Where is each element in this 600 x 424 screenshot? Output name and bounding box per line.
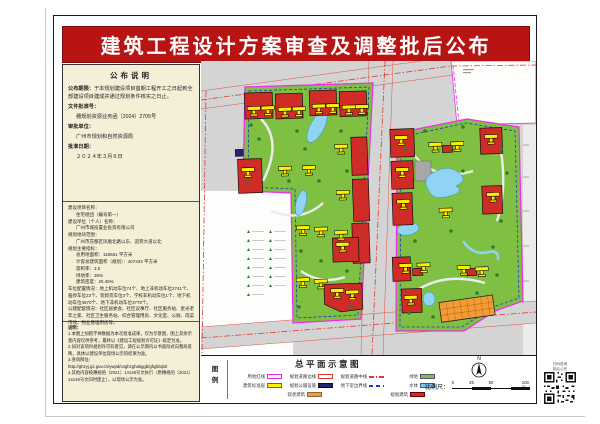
field-value: 广州市城投置业投资有限公司 bbox=[68, 225, 194, 232]
scale-tick: 25 bbox=[469, 380, 474, 385]
field-value: 广州市规划和自然资源局 bbox=[68, 133, 194, 141]
note-item: 4.其他内容按穗规函〔2021〕14148号文执行（原穗规函〔2021〕1414… bbox=[68, 370, 194, 383]
legend-label: 规划道路边线 bbox=[282, 374, 318, 380]
legend-label: 规划公服设施 bbox=[282, 383, 318, 389]
north-arrow: N bbox=[425, 357, 533, 378]
section-title: 公布说明 bbox=[68, 70, 194, 81]
legend-label: 绿地 bbox=[384, 374, 420, 380]
swatch-planned-building bbox=[410, 392, 425, 397]
indicator: 容积率：3.5 bbox=[68, 266, 194, 273]
info-panel: 公布说明 公布期限：于本规划建设项目首期工程开工之日起到全部建设项目建成并通过规… bbox=[62, 64, 200, 402]
legend-block: 总平面示意图 用地红线 规划道路边线 规划道路中线 绿地 建筑标准层 规划公服设… bbox=[231, 357, 425, 399]
field-value: ２０２４年３月６日 bbox=[68, 153, 194, 161]
parcel-right bbox=[388, 119, 529, 331]
field-label: 审批单位： bbox=[68, 124, 94, 130]
note-item: 2.如对该项目规划许可有意见，请在公示期内以书面形式向我局反映，具体以建设单位现… bbox=[68, 344, 194, 357]
site-plan-svg bbox=[201, 61, 536, 355]
legend-label: 现状建筑 bbox=[271, 392, 307, 398]
swatch-basement-line bbox=[369, 385, 384, 387]
indicator: 计容总建筑面积（规划）：407333 平方米 bbox=[68, 259, 194, 266]
legend-row: 用地红线 规划道路边线 规划道路中线 绿地 bbox=[231, 372, 425, 381]
field-value: 穗规划资源业务函〔2024〕2705号 bbox=[68, 113, 194, 121]
announcement-poster: { "banner": { "title": "建筑工程设计方案审查及调整批后公… bbox=[0, 0, 600, 424]
legend-row: 建筑标准层 规划公服设施 地下室边界线 水体 bbox=[231, 381, 425, 390]
legend-caption: 图 例 bbox=[208, 364, 222, 386]
legend-divider bbox=[227, 360, 228, 399]
section-notes: 说明： 1.本图上加粗字体数据为本次批准成果，仅为示意图，图上其余示意内容仅供参… bbox=[63, 322, 199, 400]
qr-code-icon bbox=[544, 372, 576, 404]
scan-artifact-bottom bbox=[45, 416, 585, 417]
section-announcement: 公布说明 公布期限：于本规划建设项目首期工程开工之日起到全部建设项目建成并通过规… bbox=[63, 65, 199, 202]
legend-strip: 图 例 总平面示意图 用地红线 规划道路边线 规划道路中线 绿地 建筑标准层 规… bbox=[201, 355, 536, 402]
field-label: 规划地块范围： bbox=[68, 232, 194, 239]
legend-row: 现状建筑 规划建筑 bbox=[231, 390, 425, 399]
site-plan-drawing bbox=[201, 61, 536, 355]
swatch-existing-building bbox=[307, 392, 322, 397]
field-label: 建设项目名称： bbox=[68, 205, 194, 212]
legend-label: 地下室边界线 bbox=[333, 383, 369, 389]
scale-tick: 0 bbox=[452, 380, 454, 385]
indicator: 建筑密度：25.46% bbox=[68, 279, 194, 286]
field-value: 住宅组团（编号第一） bbox=[68, 212, 194, 219]
qr-caption-line2: 批后公布 bbox=[541, 367, 579, 372]
legend-label: 用地红线 bbox=[231, 374, 267, 380]
field-label: 公建配套情况： bbox=[68, 306, 100, 311]
scale-label: 比例尺： bbox=[425, 382, 449, 392]
tiny-note-line bbox=[463, 69, 474, 70]
compass-icon bbox=[471, 362, 487, 378]
public-facility bbox=[235, 149, 243, 156]
swatch-typical-floor bbox=[267, 383, 282, 388]
white-parcel-top-right bbox=[451, 61, 536, 125]
scale-tick: 50 bbox=[489, 380, 494, 385]
scale-bar: 比例尺： 0 25 50 100米 bbox=[425, 380, 533, 392]
indicator: 总用地面积：116551 平方米 bbox=[68, 252, 194, 259]
field-label: 公布期限： bbox=[68, 86, 94, 92]
swatch-public-facility bbox=[318, 383, 333, 388]
section-project-info: 建设项目名称： 住宅组团（编号第一） 建设单位（个人）名称： 广州市城投置业投资… bbox=[63, 202, 199, 322]
swatch-road-edge bbox=[318, 374, 333, 379]
field-label: 批准日期： bbox=[68, 144, 94, 150]
scan-artifact-left bbox=[45, 8, 46, 417]
qr-block: 扫码查询 批后公布 bbox=[541, 362, 579, 409]
field-label: 文件批准号： bbox=[68, 104, 99, 110]
legend-label: 建筑标准层 bbox=[231, 383, 267, 389]
north-and-scale: N 比例尺： 0 25 50 100米 bbox=[425, 357, 533, 392]
map-title: 总平面示意图 bbox=[231, 358, 425, 370]
note-item: 1.本图上加粗字体数据为本次批准成果，仅为示意图，图上其余示意内容仅供参考，最终… bbox=[68, 331, 194, 344]
scale-ruler: 0 25 50 100米 bbox=[452, 380, 530, 392]
legend-label: 规划建筑 bbox=[322, 392, 410, 398]
swatch-land-redline bbox=[267, 374, 282, 379]
legend-label: 水体 bbox=[384, 383, 420, 389]
legend-label: 规划道路中线 bbox=[333, 374, 369, 380]
page-title: 建筑工程设计方案审查及调整批后公布 bbox=[101, 30, 492, 59]
field-label: 车位配置情况： bbox=[68, 286, 100, 291]
title-banner: 建筑工程设计方案审查及调整批后公布 bbox=[62, 26, 530, 63]
tiny-note-line bbox=[463, 72, 471, 73]
field-value: 广州市花都区凤凰北路以东、迎宾大道以北 bbox=[68, 239, 194, 246]
swatch-road-centerline bbox=[369, 376, 384, 378]
